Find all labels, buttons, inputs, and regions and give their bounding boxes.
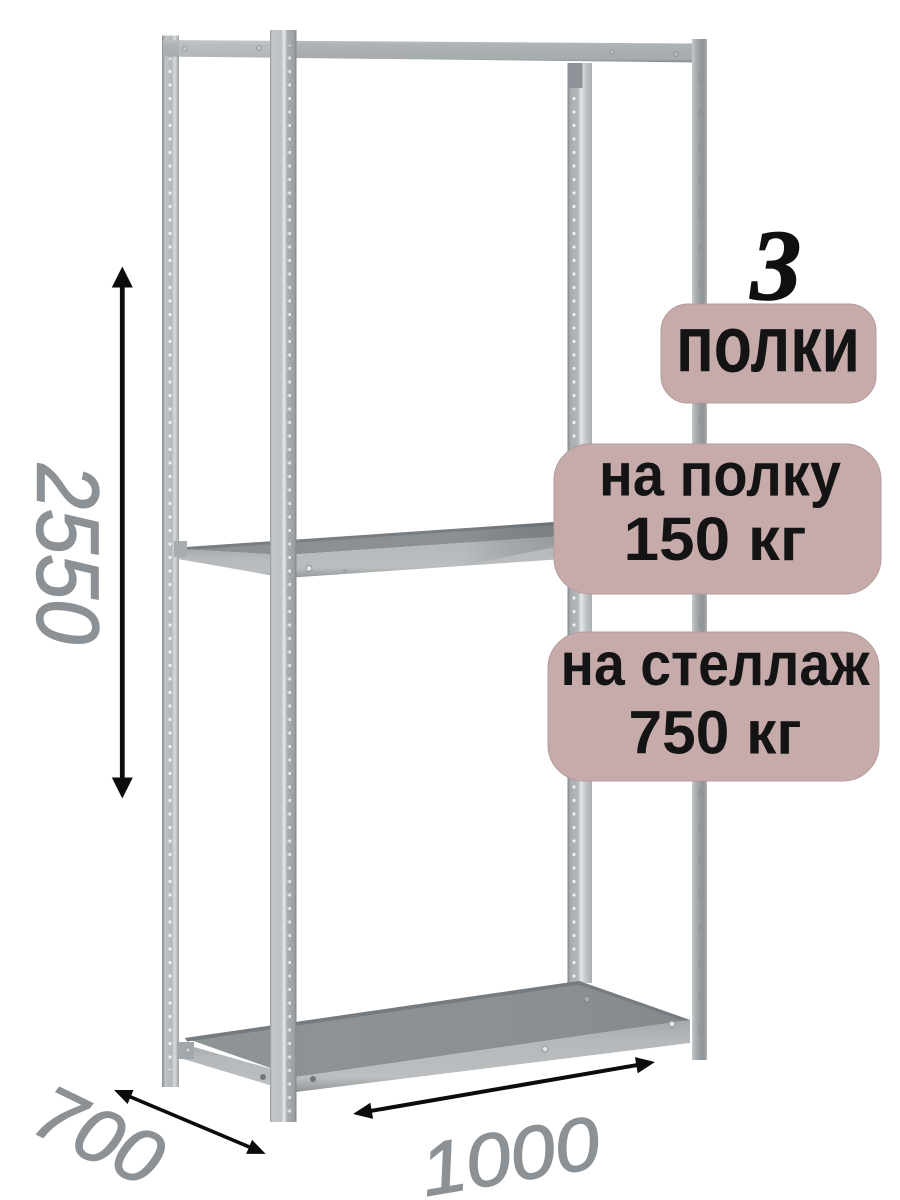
- svg-text:полки: полки: [676, 300, 860, 389]
- svg-text:2550: 2550: [18, 463, 117, 644]
- svg-text:на полку: на полку: [599, 441, 841, 509]
- svg-text:700: 700: [21, 1069, 177, 1200]
- svg-text:750 кг: 750 кг: [629, 699, 802, 767]
- svg-text:1000: 1000: [415, 1100, 606, 1200]
- svg-text:на стеллаж: на стеллаж: [561, 630, 871, 698]
- svg-text:150 кг: 150 кг: [624, 505, 807, 573]
